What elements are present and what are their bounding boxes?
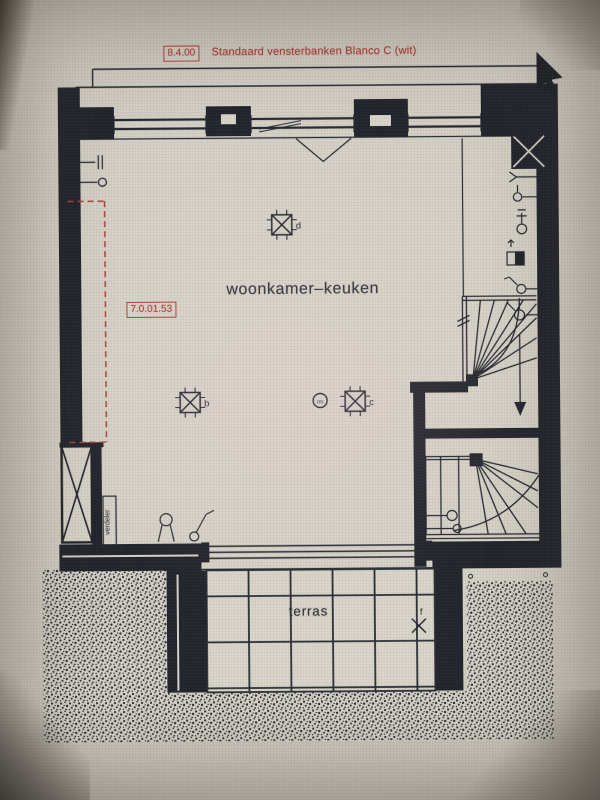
annotation-text: Standaard vensterbanken Blanco C (wit) [211,45,416,59]
tilt-window-symbol [296,138,351,161]
light-d-label: d [296,221,301,232]
light-c-label: c [369,397,374,408]
ref-code-tag: 7.0.01.53 [126,302,176,318]
light-d-symbol [267,210,297,240]
landing-edge [462,138,463,296]
right-wall-electrical-symbols [503,172,537,320]
stairs-lower [422,453,543,539]
light-f-label: f [420,607,423,618]
light-b-label: b [204,398,209,409]
stairs-upper [457,296,537,417]
canopy-outline [76,66,544,103]
duct-shaft-symbol [511,134,546,169]
svg-text:rm: rm [317,399,324,405]
room-label-living-kitchen: woonkamer–keuken [226,280,379,299]
smoke-detector-symbol: rm [313,393,327,407]
terrace-tiles [206,569,435,693]
left-wall-electrical-symbols [80,155,106,186]
bottom-wall-electrical-symbols [158,510,214,541]
room-label-terrace: terras [289,603,328,618]
screen-photo: verdeler [0,0,600,800]
light-b-symbol [175,387,205,417]
sliding-door [201,541,434,570]
distribution-box-label: verdeler [104,509,111,535]
floor-plan-drawing: verdeler [0,0,600,800]
window-band [80,113,536,164]
light-c-symbol [340,386,370,416]
stair-socket-symbols [426,510,461,532]
annotation-code-tag: 8.4.00 [163,45,199,61]
